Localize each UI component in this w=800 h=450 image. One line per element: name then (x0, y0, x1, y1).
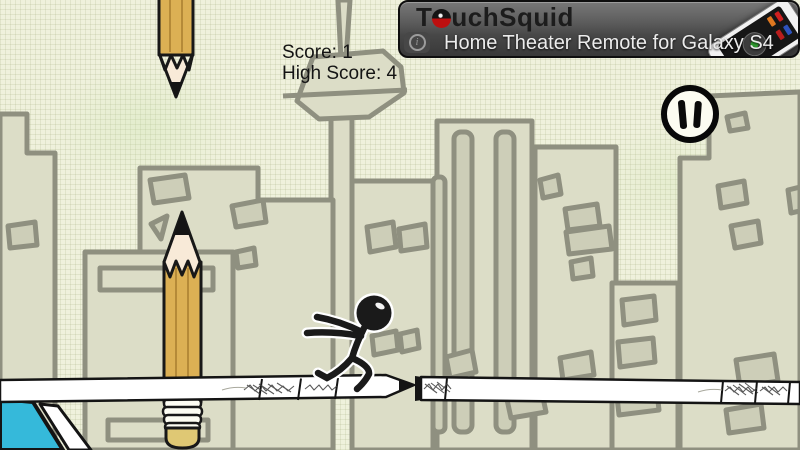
ad-headline: Home Theater Remote for Galaxy S4 (444, 32, 774, 55)
brand-o-logo-icon: o (432, 9, 451, 28)
blue-object (0, 399, 91, 450)
stickman-head (357, 296, 392, 331)
remote-button-red (774, 11, 784, 22)
ad-brand-logo: TouchSquid (416, 2, 574, 33)
high-score-label: High Score: 4 (282, 63, 397, 84)
hud: Score: 1 High Score: 4 (282, 42, 397, 84)
remote-button-orange (767, 16, 777, 27)
pause-icon (693, 100, 702, 127)
pause-button[interactable] (661, 85, 719, 143)
remote-button-blue (783, 24, 793, 35)
score-label: Score: 1 (282, 42, 397, 63)
remote-button-red2 (775, 29, 785, 40)
info-icon: i (409, 34, 426, 51)
pencil-eraser (166, 428, 199, 448)
platform-end-cap (415, 376, 422, 401)
ad-info-chip[interactable]: i (404, 32, 430, 53)
platform-pencil-right (415, 376, 800, 404)
game-scene (0, 0, 800, 450)
pause-icon (678, 99, 688, 128)
game-area[interactable]: Score: 1 High Score: 4 TouchSquid Home T… (0, 0, 800, 450)
falling-pencil (159, 0, 193, 98)
ad-banner[interactable]: TouchSquid Home Theater Remote for Galax… (398, 0, 800, 58)
pencil-ferrule (163, 399, 202, 431)
